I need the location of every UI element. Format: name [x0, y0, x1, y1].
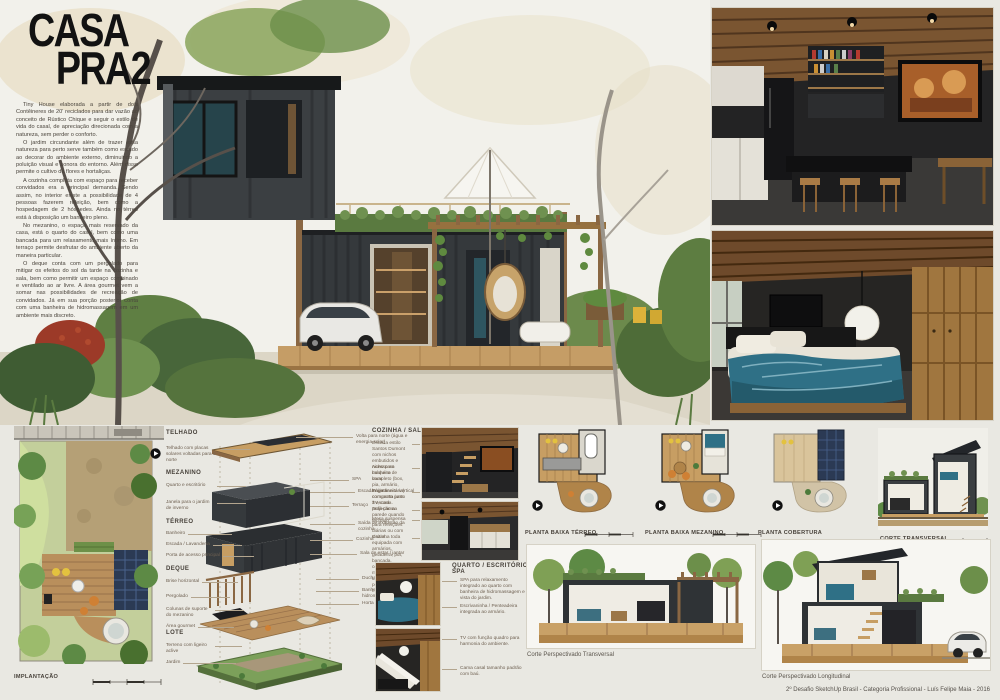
exploded-axonometric — [192, 428, 348, 698]
exploded-heading-mezanino: MEZANINO — [166, 470, 201, 476]
render-bedroom-interior — [712, 231, 993, 420]
north-arrow-icon — [655, 500, 666, 511]
quarto-note: Escrivaninha / Penteadeira integrada ao … — [442, 604, 526, 616]
cozinha-note: Sofá cama. — [372, 507, 420, 513]
exploded-note: Porta de acesso principal — [166, 553, 254, 559]
render-kitchen-interior — [712, 8, 993, 225]
section-perspective-longitudinal — [762, 540, 990, 670]
section-longitudinal-caption: Corte Perspectivado Longitudinal — [762, 674, 850, 680]
exploded-note: Terreno com ligeiro aclive — [166, 643, 242, 655]
exploded-heading-telhado: TELHADO — [166, 430, 198, 436]
section-perspective-transversal — [527, 545, 755, 648]
title-line-2: PRA2 — [56, 50, 150, 88]
exploded-note: Brise horizontal — [166, 579, 238, 585]
quarto-heading: QUARTO / ESCRITÓRIO / SPA — [452, 563, 532, 575]
intro-paragraph: A cozinha completa com espaço para receb… — [16, 178, 138, 222]
bedroom-interior-illustration — [712, 231, 993, 420]
exploded-note: Colunas de suporte do mezanino — [166, 607, 244, 619]
exploded-note: Telhado com placas solares voltadas para… — [166, 446, 250, 464]
exploded-heading-deque: DEQUE — [166, 566, 189, 572]
intro-paragraph: O jardim circundante além de trazer essa… — [16, 140, 138, 177]
exploded-note: Janela para o jardim de inverno — [166, 500, 246, 512]
intro-paragraph: O deque conta com um pergolado para miti… — [16, 261, 138, 320]
site-plan — [14, 426, 164, 664]
corte-transversal — [878, 428, 988, 530]
intro-paragraph: No mezanino, o espaço mais reservado da … — [16, 223, 138, 260]
intro-paragraph: Tiny House elaborada a partir de dois Co… — [16, 102, 138, 139]
intro-text: Tiny House elaborada a partir de dois Co… — [16, 102, 138, 321]
north-arrow-icon — [532, 500, 543, 511]
exploded-note: Escada / Lavanderia — [166, 542, 242, 548]
scale-bar — [712, 531, 762, 538]
hero-render: CASA PRA2 Tiny House elaborada a partir … — [0, 0, 710, 425]
scale-bar — [92, 678, 162, 686]
photo-bedroom-1 — [376, 563, 440, 625]
exploded-note: Jardim — [166, 660, 236, 666]
photo-bedroom-2 — [376, 629, 440, 691]
quarto-note: SPA para relaxamento integrado ao quarto… — [442, 578, 526, 602]
photo-living-stairs — [422, 428, 518, 498]
exploded-heading-terreo: TÉRREO — [166, 519, 193, 525]
quarto-note: Cama casal tamanho padrão com baú. — [442, 666, 526, 678]
presentation-board: CASA PRA2 Tiny House elaborada a partir … — [0, 0, 1000, 700]
plan-cobertura-label: PLANTA COBERTURA — [758, 530, 822, 536]
north-arrow-icon — [150, 448, 161, 459]
quarto-note: TV com função quadro para harmonia do am… — [442, 636, 526, 648]
exploded-note: Banheiro — [166, 531, 232, 537]
exploded-note: Pergolado — [166, 594, 230, 600]
section-transversal-caption: Corte Perspectivado Transversal — [527, 652, 614, 658]
site-plan-label: IMPLANTAÇÃO — [14, 674, 58, 680]
project-title: CASA PRA2 — [28, 12, 150, 87]
kitchen-interior-illustration — [712, 8, 993, 225]
exploded-heading-lote: LOTE — [166, 630, 184, 636]
photo-kitchen — [422, 502, 518, 560]
exploded-axonometric-illustration — [192, 428, 348, 698]
site-plan-illustration — [14, 426, 164, 664]
north-arrow-icon — [772, 500, 783, 511]
footer-credit: 2º Desafio SketchUp Brasil - Categoria P… — [700, 687, 990, 693]
exploded-note: Quarto e escritório — [166, 483, 246, 489]
scale-bar — [584, 531, 634, 538]
